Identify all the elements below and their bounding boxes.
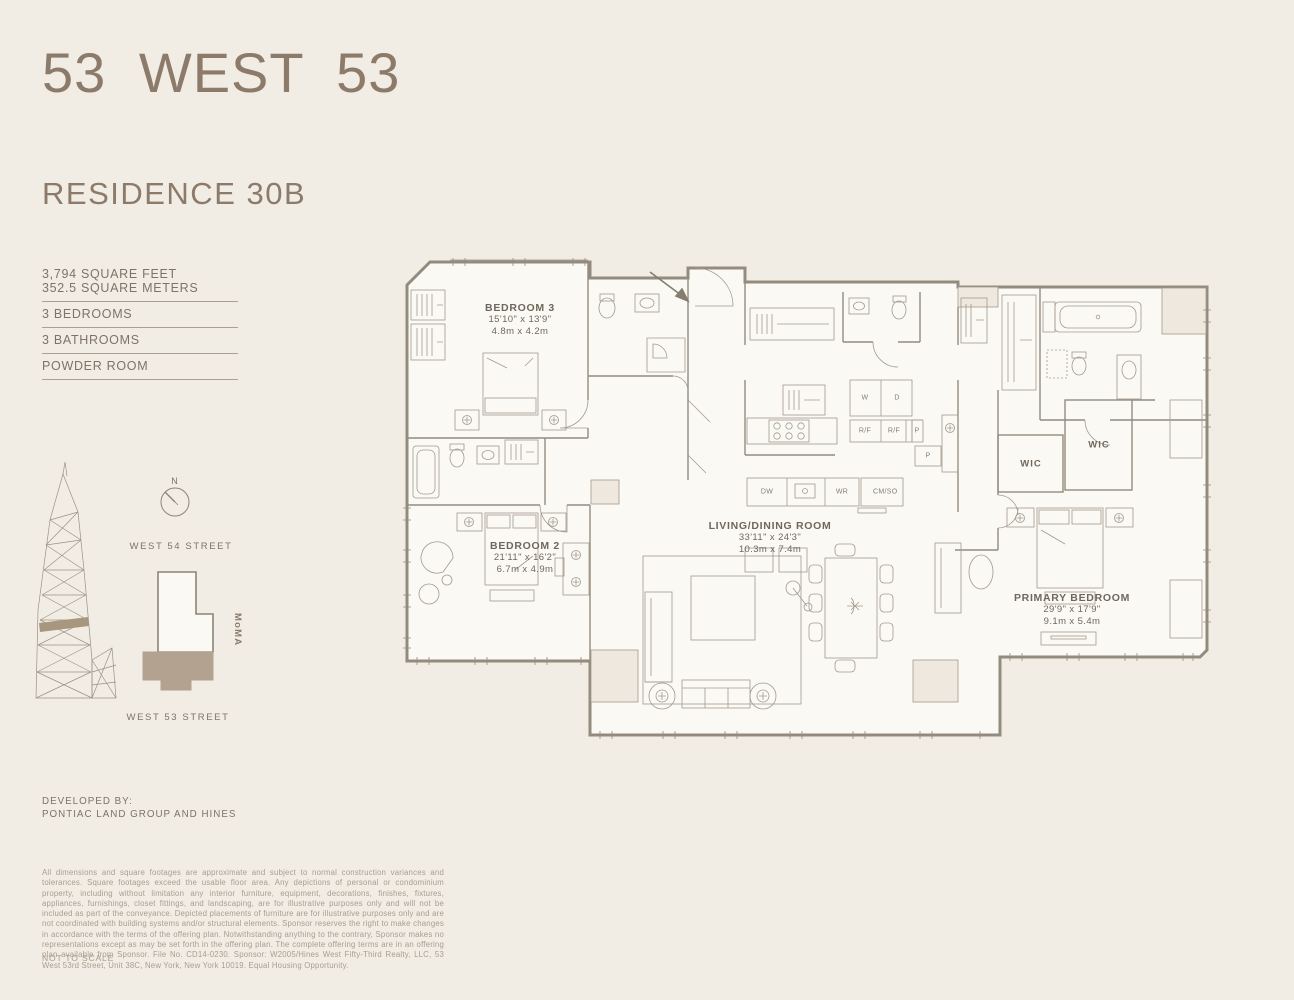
wic1-label: WIC [1020,459,1041,470]
dryer-label: D [894,395,899,402]
stat-bedrooms: 3 BEDROOMS [42,302,238,327]
bedroom3-label: BEDROOM 3 15'10" x 13'9" 4.8m x 4.2m [485,302,555,338]
dishwasher-label: DW [761,489,773,496]
wine-fridge-label: WR [836,489,848,496]
primary-metric: 9.1m x 5.4m [1014,616,1130,628]
floor-band-marker [39,617,89,632]
living-metric: 10.3m x 7.4m [709,544,832,556]
bedroom2-imperial: 21'11" x 16'2" [490,552,560,564]
locator-graphic [20,460,270,745]
fridge1-label: R/F [859,428,871,435]
stat-area-m: 352.5 SQUARE METERS [42,281,238,295]
stat-powder: POWDER ROOM [42,354,238,379]
bedroom2-label: BEDROOM 2 21'11" x 16'2" 6.7m x 4.9m [490,540,560,576]
developer-block: DEVELOPED BY: PONTIAC LAND GROUP AND HIN… [42,795,236,821]
primary-name: PRIMARY BEDROOM [1014,592,1130,604]
fridge2-label: R/F [888,428,900,435]
compass-n-label: N [171,476,179,486]
stat-area-ft: 3,794 SQUARE FEET [42,267,238,281]
coffee-speedoven-label: CM/SO [873,489,891,496]
street-west53-label: WEST 53 STREET [127,712,230,723]
developer-name: PONTIAC LAND GROUP AND HINES [42,808,236,821]
bedroom2-name: BEDROOM 2 [490,540,560,552]
residence-title: RESIDENCE 30B [42,176,306,212]
compass-icon [161,488,189,516]
stat-area: 3,794 SQUARE FEET 352.5 SQUARE METERS [42,262,238,301]
living-label: LIVING/DINING ROOM 33'11" x 24'3" 10.3m … [709,520,832,556]
moma-label: MoMA [232,613,243,646]
pantry1-label: P [915,428,920,435]
floorplan-sheet: { "colors":{"background":"#f2ede4","bran… [0,0,1294,1000]
stat-bathrooms: 3 BATHROOMS [42,328,238,353]
bedroom2-metric: 6.7m x 4.9m [490,564,560,576]
pantry2-label: P [926,453,931,460]
developed-by-label: DEVELOPED BY: [42,795,236,808]
primary-label: PRIMARY BEDROOM 29'9" x 17'9" 9.1m x 5.4… [1014,592,1130,628]
bedroom3-metric: 4.8m x 4.2m [485,326,555,338]
street-west54-label: WEST 54 STREET [130,541,233,552]
wic2-label: WIC [1088,440,1109,451]
living-name: LIVING/DINING ROOM [709,520,832,532]
primary-imperial: 29'9" x 17'9" [1014,604,1130,616]
building-title: 53 WEST 53 [42,40,400,105]
site-footprint [143,572,213,690]
bedroom3-imperial: 15'10" x 13'9" [485,314,555,326]
tower-wireframe-icon [36,462,116,698]
living-imperial: 33'11" x 24'3" [709,532,832,544]
divider [42,379,238,380]
floorplan: BEDROOM 3 15'10" x 13'9" 4.8m x 4.2m BED… [395,250,1215,750]
unit-stats: 3,794 SQUARE FEET 352.5 SQUARE METERS 3 … [42,262,238,380]
not-to-scale-note: NOT TO SCALE [42,953,114,963]
washer-label: W [862,395,869,402]
bedroom3-name: BEDROOM 3 [485,302,555,314]
